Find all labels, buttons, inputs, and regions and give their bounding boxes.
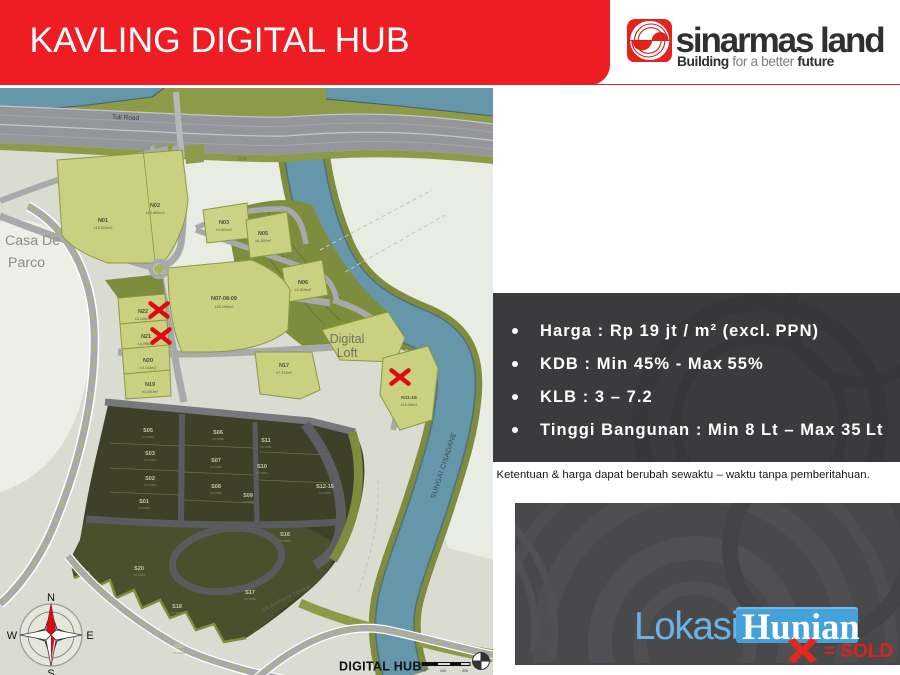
svg-text:±12.860m2: ±12.860m2 [146, 211, 165, 215]
svg-text:S17: S17 [245, 590, 255, 596]
svg-text:N02: N02 [150, 203, 160, 209]
svg-text:S18: S18 [172, 604, 182, 610]
svg-text:±3.70Ha: ±3.70Ha [279, 539, 291, 543]
svg-text:±3.70Ha: ±3.70Ha [142, 435, 154, 439]
svg-text:S09: S09 [243, 493, 253, 499]
svg-text:N07-08-09: N07-08-09 [211, 296, 237, 302]
svg-text:N19: N19 [145, 382, 155, 388]
svg-text:S03: S03 [145, 451, 155, 457]
svg-text:S16: S16 [280, 532, 290, 538]
svg-text:S02: S02 [145, 476, 155, 482]
svg-text:Parco: Parco [8, 255, 45, 271]
svg-text:N03: N03 [219, 220, 229, 226]
svg-text:IITP: IITP [238, 157, 248, 163]
svg-text:N06: N06 [298, 280, 308, 286]
svg-text:N21: N21 [141, 334, 151, 340]
svg-text:±3.70Ha: ±3.70Ha [133, 573, 145, 577]
svg-text:DIGITAL HUB: DIGITAL HUB [339, 660, 422, 674]
svg-text:±7.376m²: ±7.376m² [276, 371, 293, 375]
svg-text:S06: S06 [213, 430, 223, 436]
svg-text:S11: S11 [261, 438, 270, 444]
svg-text:±3.70Ha: ±3.70Ha [173, 651, 185, 655]
svg-text:W: W [7, 630, 18, 642]
svg-text:±18.201m2: ±18.201m2 [94, 226, 113, 230]
svg-text:±3.70Ha: ±3.70Ha [171, 611, 183, 615]
svg-text:S01: S01 [139, 499, 149, 505]
svg-text:±3.70Ha: ±3.70Ha [242, 500, 254, 504]
svg-text:±6.160m²: ±6.160m² [255, 239, 272, 243]
svg-text:N05: N05 [258, 231, 268, 237]
svg-text:±3.70Ha: ±3.70Ha [212, 437, 224, 441]
svg-text:300: 300 [462, 669, 468, 673]
svg-text:N: N [47, 592, 55, 604]
svg-text:N22: N22 [138, 309, 148, 315]
svg-text:±3.019m2: ±3.019m2 [295, 288, 312, 292]
svg-text:±10.26m2: ±10.26m2 [401, 403, 418, 407]
svg-text:S10: S10 [257, 464, 267, 470]
svg-text:N17: N17 [279, 363, 289, 369]
svg-text:±3.70Ha: ±3.70Ha [210, 491, 222, 495]
svg-text:±3.70Ha: ±3.70Ha [244, 597, 256, 601]
svg-text:N20: N20 [143, 358, 153, 364]
svg-text:E: E [86, 630, 93, 642]
svg-text:±3.70Ha: ±3.70Ha [319, 491, 331, 495]
svg-text:Digital: Digital [330, 332, 365, 346]
svg-text:N01: N01 [98, 218, 108, 224]
svg-text:Casa De: Casa De [5, 233, 60, 249]
svg-text:±20.199m2: ±20.199m2 [215, 305, 234, 309]
svg-text:Loft: Loft [337, 346, 358, 360]
svg-text:S05: S05 [143, 428, 153, 434]
svg-text:±3.70Ha: ±3.70Ha [144, 458, 156, 462]
svg-text:±3.70Ha: ±3.70Ha [144, 483, 156, 487]
svg-text:±3.70Ha: ±3.70Ha [260, 445, 272, 449]
svg-text:Toll Road: Toll Road [112, 114, 140, 122]
svg-text:S08: S08 [211, 484, 221, 490]
svg-text:±3.70Ha: ±3.70Ha [138, 506, 150, 510]
svg-text:S: S [47, 668, 54, 675]
svg-text:S19: S19 [174, 644, 184, 650]
svg-text:S20: S20 [134, 566, 144, 572]
svg-text:±3.143m2: ±3.143m2 [140, 366, 157, 370]
svg-text:±3.601m2: ±3.601m2 [216, 228, 233, 232]
svg-text:±3.050m²: ±3.050m² [142, 390, 159, 394]
svg-text:S07: S07 [211, 458, 221, 464]
svg-text:0: 0 [424, 669, 426, 673]
svg-text:100: 100 [440, 669, 446, 673]
svg-text:±3.70Ha: ±3.70Ha [210, 465, 222, 469]
svg-text:S12-15: S12-15 [316, 484, 334, 490]
svg-text:±3.70Ha: ±3.70Ha [256, 471, 268, 475]
svg-text:N11-16: N11-16 [401, 395, 417, 401]
